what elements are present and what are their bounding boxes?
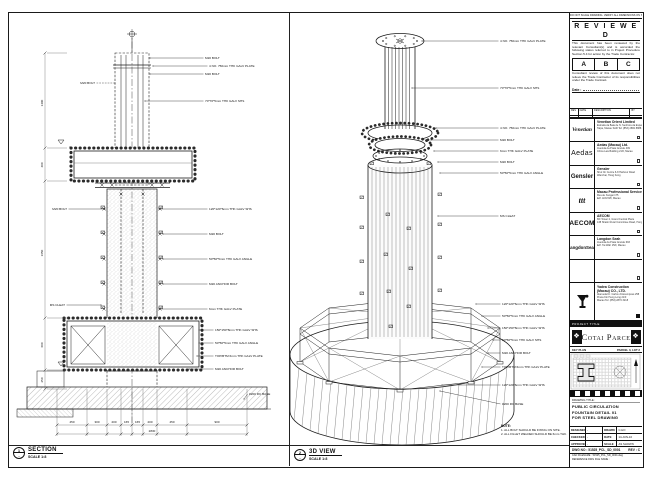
stamp-status-options: A B C	[572, 58, 640, 71]
checkbox	[637, 276, 641, 280]
svg-text:50*50*5mm THK GALV SHS: 50*50*5mm THK GALV SHS	[502, 338, 541, 342]
drawing-title-label: DRAWING TITLE :	[572, 398, 640, 403]
stamp-date-row: Date :	[572, 84, 640, 93]
svg-text:50*50*5mm THK GALV ANGLE: 50*50*5mm THK GALV ANGLE	[502, 314, 545, 318]
company-row-empty	[570, 260, 642, 282]
section-view-label: 1 - SECTION SCALE 1:8	[13, 447, 63, 459]
consultant-list: Venetian Venetian Orient Limited Estrada…	[570, 119, 642, 283]
svg-text:120*120*6mm THK GALV SHS: 120*120*6mm THK GALV SHS	[502, 302, 545, 306]
company-logo: ttt	[570, 189, 595, 211]
svg-text:900: 900	[214, 420, 219, 424]
rev-col: BY	[630, 109, 642, 116]
section-title: SECTION	[28, 447, 63, 454]
date-line	[583, 87, 639, 91]
status-option-a: A	[573, 59, 595, 70]
svg-text:M20 BOLT: M20 BOLT	[205, 56, 220, 60]
ornament-icon: ❖	[572, 330, 582, 344]
note-line: 2. ALL FILLET WELDED SHOULD BE 6mm THK.	[501, 433, 571, 437]
company-logo: Gensler	[570, 166, 595, 188]
svg-text:1650: 1650	[40, 249, 44, 256]
checkbox	[637, 183, 641, 187]
status-option-b: B	[595, 59, 617, 70]
svg-text:165: 165	[124, 420, 129, 424]
ornament-icon: ❖	[631, 330, 641, 344]
drawing-title-block: DRAWING TITLE : PUBLIC CIRCULATION FOUNT…	[570, 397, 642, 427]
company-row: ttt Macau Professional Services Ltd. Rua…	[570, 189, 642, 212]
iso-detail-bubble: 2 -	[294, 449, 306, 461]
svg-text:M20 ANCHOR BOLT: M20 ANCHOR BOLT	[215, 367, 244, 371]
bubble-ref: -	[18, 453, 19, 458]
drawing-sheet: 4503002001651652004509002830140040016506…	[8, 12, 644, 468]
svg-text:300: 300	[94, 420, 99, 424]
stamp-paragraph: Consultant review of this document does …	[572, 72, 640, 83]
svg-text:50*50*5mm THK GALV ANGLE: 50*50*5mm THK GALV ANGLE	[500, 171, 543, 175]
company-row: LangdonSeah Langdon Seah Avenida da Prai…	[570, 236, 642, 259]
svg-text:MS CLEAT: MS CLEAT	[500, 214, 515, 218]
svg-text:150*150*8mm THK GALV SHS: 150*150*8mm THK GALV SHS	[215, 328, 258, 332]
reviewed-title: R E V I E W E D	[572, 21, 640, 41]
revision-strip: REV DATE DESCRIPTION BY	[570, 109, 642, 119]
stamp-paragraph: This document has been reviewed by the r…	[572, 42, 640, 57]
svg-text:M20 BOLT: M20 BOLT	[209, 232, 224, 236]
svg-text:250: 250	[40, 377, 44, 382]
contractor-logo-icon	[570, 283, 595, 320]
date-label: Date :	[572, 88, 581, 92]
contractor-block: Yadea Construction (Macau) CO., LTD. Ala…	[570, 283, 642, 321]
rev-col: DESCRIPTION	[593, 109, 630, 116]
svg-text:50*50*5mm THK GALV ANGLE: 50*50*5mm THK GALV ANGLE	[209, 257, 252, 261]
company-row: Venetian Venetian Orient Limited Estrada…	[570, 119, 642, 142]
section-detail-bubble: 1 -	[13, 447, 25, 459]
svg-text:#200 RC BASE: #200 RC BASE	[249, 392, 270, 396]
cad-filename-rows: CAD FILENAME : 51525_PCL_SD_0001.dwg REF…	[570, 454, 642, 465]
rev-col: REV	[570, 109, 579, 116]
svg-text:4 NO. 750mm THK GALV PLATE: 4 NO. 750mm THK GALV PLATE	[500, 39, 546, 43]
status-option-c: C	[618, 59, 639, 70]
dwg-number: 51525_PCL_SD_0001	[588, 448, 620, 452]
section-drawing: 4503002001651652004509002830140040016506…	[9, 13, 289, 445]
svg-text:6mm THK GALV PLATE: 6mm THK GALV PLATE	[209, 307, 242, 311]
svg-text:70*70*5mm THK GALV SHS: 70*70*5mm THK GALV SHS	[205, 99, 244, 103]
iso-drawing: 4 NO. 750mm THK GALV PLATE70*70*5mm THK …	[290, 13, 569, 445]
svg-text:M20 BOLT: M20 BOLT	[52, 207, 67, 211]
iso-title: 3D VIEW	[309, 449, 342, 456]
svg-text:M20 BOLT: M20 BOLT	[80, 81, 95, 85]
section-scale: SCALE 1:8	[28, 455, 63, 459]
project-name-row: ❖ Cotai Parcel 3 ❖	[570, 327, 642, 347]
title-block: DO NOT SCALE DRAWING. VERIFY ALL DIMENSI…	[569, 13, 642, 467]
view-divider	[289, 13, 290, 466]
svg-text:165: 165	[135, 420, 140, 424]
checkbox	[637, 253, 641, 257]
key-plan: KEY PLAN PARCEL 3, LOT 2	[570, 347, 642, 391]
company-logo: Aedas	[570, 142, 595, 164]
general-notes: NOTE: 1. ALL BOLT SHOULD BE FIXING ON SI…	[501, 425, 571, 436]
company-row: Gensler Gensler Shui On Centre 6-8 Harbo…	[570, 166, 642, 189]
company-logo: AECOM	[570, 213, 595, 235]
svg-text:70*70*5mm THK GALV SHS: 70*70*5mm THK GALV SHS	[500, 86, 539, 90]
bubble-ref: -	[299, 455, 300, 460]
svg-text:MS CLEAT: MS CLEAT	[50, 303, 65, 307]
checkbox	[637, 206, 641, 210]
svg-text:M20 BOLT: M20 BOLT	[205, 72, 220, 76]
svg-text:M20 ANCHOR BOLT: M20 ANCHOR BOLT	[502, 351, 531, 355]
company-logo: Venetian	[570, 119, 595, 141]
reviewed-stamp: R E V I E W E D This document has been r…	[570, 19, 642, 109]
svg-text:200: 200	[147, 420, 152, 424]
svg-text:M20 ANCHOR BOLT: M20 ANCHOR BOLT	[209, 282, 238, 286]
company-row: Aedas Aedas (Macau) Ltd. Avenida da Prai…	[570, 142, 642, 165]
key-plan-label: KEY PLAN	[572, 347, 586, 352]
dwg-number-row: DWG NO : 51525_PCL_SD_0001 REV : C	[570, 447, 642, 454]
company-logo: LangdonSeah	[570, 236, 595, 258]
svg-text:4 NO. 750mm THK GALV PLATE: 4 NO. 750mm THK GALV PLATE	[209, 64, 255, 68]
checkbox	[637, 159, 641, 163]
iso-view-label: 2 - 3D VIEW SCALE 1:8	[294, 449, 342, 461]
svg-text:600: 600	[40, 342, 44, 347]
iso-scale: SCALE 1:8	[309, 457, 342, 461]
svg-text:450: 450	[69, 420, 74, 424]
key-plan-map	[570, 353, 641, 390]
svg-text:120*120*6mm THK GALV SHS: 120*120*6mm THK GALV SHS	[209, 207, 252, 211]
svg-text:150*150*8mm THK GALV SHS: 150*150*8mm THK GALV SHS	[502, 326, 545, 330]
svg-text:M20 BOLT: M20 BOLT	[500, 138, 515, 142]
svg-text:TOP/BTM 6mm THK GALV PLATE: TOP/BTM 6mm THK GALV PLATE	[502, 365, 550, 369]
svg-text:#200 RC BASE: #200 RC BASE	[502, 402, 523, 406]
drawing-area-bottom-line	[9, 445, 569, 446]
svg-text:120*120*6mm THK GALV SHS: 120*120*6mm THK GALV SHS	[502, 383, 545, 387]
rev-value: C	[638, 448, 640, 452]
svg-text:400: 400	[40, 162, 44, 167]
checkbox	[637, 230, 641, 234]
stamp-box	[636, 314, 640, 318]
svg-text:1400: 1400	[40, 99, 44, 106]
rev-col: DATE	[579, 109, 593, 116]
approval-table: DESIGNED - DRAWN C.HO CHECKED - DATE 14-…	[570, 427, 642, 447]
svg-text:6mm THK GALV PLATE: 6mm THK GALV PLATE	[500, 149, 533, 153]
checkbox	[637, 136, 641, 140]
svg-text:M20 BOLT: M20 BOLT	[500, 160, 515, 164]
svg-text:2830: 2830	[149, 429, 156, 433]
key-plan-parcel: PARCEL 3, LOT 2	[617, 347, 640, 352]
svg-text:50*50*5mm THK GALV ANGLE: 50*50*5mm THK GALV ANGLE	[215, 341, 258, 345]
project-name: Cotai Parcel 3	[582, 332, 631, 342]
svg-text:450: 450	[169, 420, 174, 424]
svg-text:4 NO. 750mm THK GALV PLATE: 4 NO. 750mm THK GALV PLATE	[500, 126, 546, 130]
company-row: AECOM AECOM 8/F Tower 2, Grand Central P…	[570, 213, 642, 236]
svg-text:TOP/BTM 6mm THK GALV PLATE: TOP/BTM 6mm THK GALV PLATE	[215, 354, 263, 358]
svg-text:200: 200	[111, 420, 116, 424]
